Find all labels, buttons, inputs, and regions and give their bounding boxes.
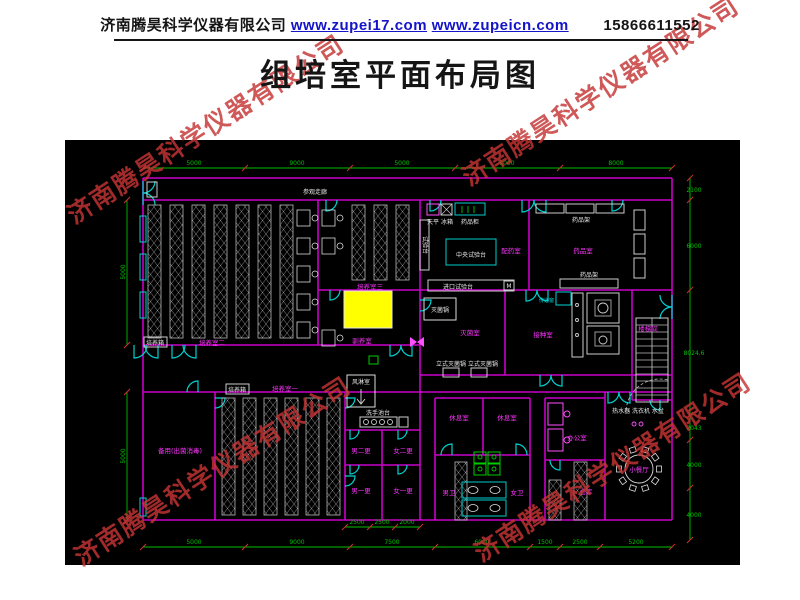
dim-left-1: 5000 [120, 448, 127, 463]
label-corridor: 参观走廊 [303, 188, 327, 196]
culture-rack [170, 205, 183, 338]
label-vertical-sterilizers: 立式灭菌锅 立式灭菌锅 [436, 360, 498, 368]
label-room-inoculation: 接种室 [533, 330, 553, 339]
label-import-bench: 进口试验台 [443, 283, 473, 291]
label-central-bench: 中央试验台 [456, 251, 486, 259]
dim-top-3: 8000 [499, 160, 514, 167]
label-room-rest2: 休息室 [497, 413, 517, 422]
label-medicine-cabinet: 药品柜 [461, 218, 479, 226]
label-room-sterilization: 灭菌室 [460, 328, 480, 337]
dim-right-2: 8024.6 [684, 350, 705, 357]
culture-rack [306, 398, 319, 515]
label-room-stairwell: 楼梯间 [638, 324, 658, 333]
label-room-dispensing: 配药室 [501, 246, 521, 255]
culture-rack [192, 205, 205, 338]
label-shelf-bottom: 药品架 [580, 271, 598, 279]
culture-rack [396, 205, 409, 280]
label-room-change-f1: 女一更 [393, 486, 413, 495]
label-air-shower: 风淋室 [352, 378, 370, 386]
label-door-tag: M [506, 283, 511, 290]
company-name: 济南腾昊科学仪器有限公司 [100, 17, 286, 34]
dim-bottom-5: 2500 [572, 539, 587, 546]
highlight-box [344, 291, 392, 328]
dim-right-4: 4000 [686, 462, 701, 469]
dim-top-2: 5000 [394, 160, 409, 167]
dim-bottom-3: 6000 [474, 539, 489, 546]
culture-rack [280, 205, 293, 338]
dim-top-0: 5000 [186, 160, 201, 167]
dim-bottom-4: 1500 [537, 539, 552, 546]
page-title: 组培室平面布局图 [0, 50, 800, 95]
label-sterilizer: 灭菌锅 [431, 306, 449, 314]
culture-rack [285, 398, 298, 515]
label-room-culture2: 培养室二 [199, 338, 226, 347]
label-room-spare: 备用(出菌消毒) [158, 446, 202, 455]
culture-rack [264, 398, 277, 515]
culture-rack [352, 205, 365, 280]
label-room-rest1: 休息室 [449, 413, 469, 422]
label-incubator-2: 培养箱 [228, 386, 246, 394]
label-transfer-window: 传递窗 [539, 297, 554, 304]
label-utility-row: 热水器 洗衣机 水盆 [612, 407, 664, 415]
page-header: 济南腾昊科学仪器有限公司 www.zupei17.com www.zupeicn… [0, 14, 800, 35]
culture-rack [374, 205, 387, 280]
dim-bottom-0: 5000 [186, 539, 201, 546]
label-room-culture3: 培养室三 [357, 282, 384, 291]
dim-top-1: 9000 [289, 160, 304, 167]
label-room-acclimation: 驯养室 [352, 336, 372, 345]
culture-rack [243, 398, 256, 515]
dim-bottom-2: 7500 [384, 539, 399, 546]
culture-rack [222, 398, 235, 515]
label-side-bench: 试验台 [421, 236, 429, 254]
dim-right-1: 6000 [686, 243, 701, 250]
dim-top-4: 8000 [608, 160, 623, 167]
label-room-culture1: 培养室一 [272, 384, 299, 393]
dim-right-5: 4000 [686, 512, 701, 519]
dim-right-3: 2043 [686, 425, 701, 432]
culture-rack [148, 205, 161, 338]
dim-bottom-6: 5200 [628, 539, 643, 546]
label-room-change-m2: 男二更 [351, 447, 371, 455]
culture-rack [258, 205, 271, 338]
dim-left-0: 5000 [120, 264, 127, 279]
label-room-medicine: 药品室 [573, 246, 593, 255]
header-divider [114, 39, 688, 41]
dim-inner-2: 2000 [399, 519, 414, 526]
culture-rack [236, 205, 249, 338]
link-zupei17[interactable]: www.zupei17.com [291, 17, 427, 34]
label-incubator-1: 培养箱 [146, 339, 164, 347]
label-room-change-m1: 男一更 [351, 487, 371, 495]
dim-bottom-1: 9000 [289, 539, 304, 546]
label-balance: 天平 [427, 219, 439, 226]
label-room-toilet-f: 女卫 [511, 488, 525, 497]
phone-number: 15866611552 [603, 17, 699, 34]
culture-rack [327, 398, 340, 515]
label-room-office: 办公室 [567, 433, 587, 442]
label-room-storage: 仓库 [580, 487, 594, 496]
link-zupeicn[interactable]: www.zupeicn.com [432, 17, 569, 34]
label-room-dining: 小餐厅 [629, 465, 649, 474]
culture-rack [214, 205, 227, 338]
drawing-canvas [65, 140, 740, 565]
dim-inner-1: 2500 [374, 519, 389, 526]
culture-rack [549, 480, 561, 520]
culture-rack [455, 462, 467, 520]
label-fridge: 冰箱 [441, 218, 453, 226]
label-shelf-top: 药品架 [572, 216, 590, 224]
label-wash-basin: 洗手池台 [366, 409, 390, 417]
dim-right-0: 2100 [686, 187, 701, 194]
label-room-toilet-m: 男卫 [443, 489, 457, 497]
dim-inner-0: 2500 [349, 519, 364, 526]
label-room-change-f2: 女二更 [393, 446, 413, 455]
